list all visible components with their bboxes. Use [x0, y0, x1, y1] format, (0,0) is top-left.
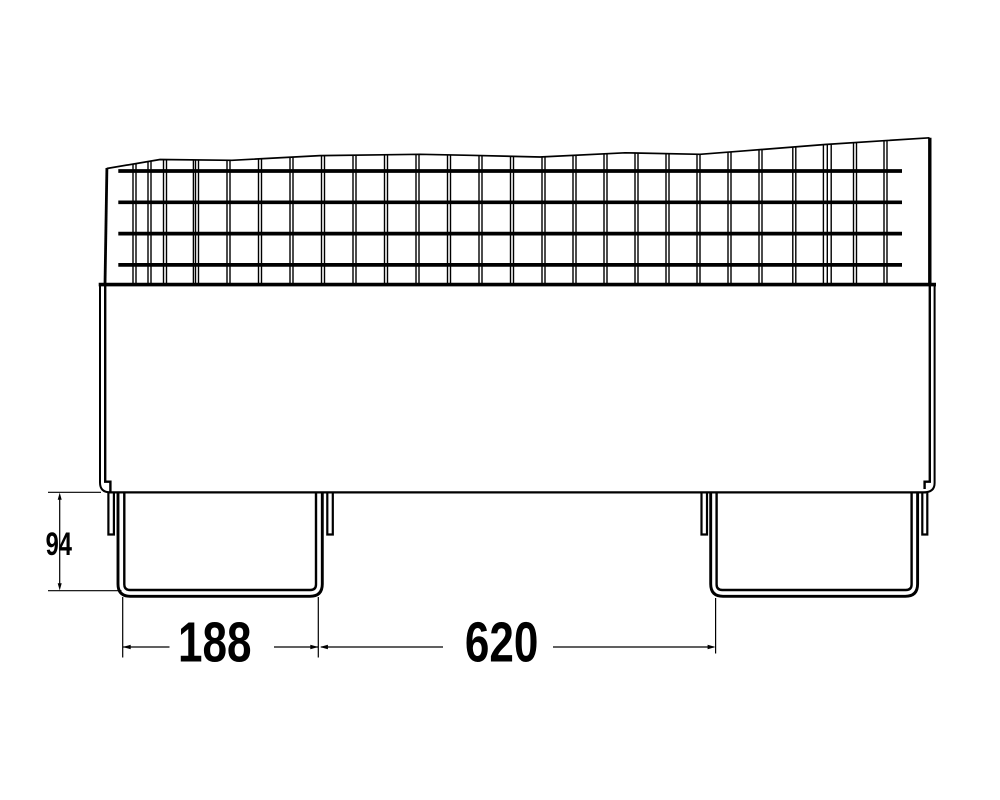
svg-text:620: 620	[465, 610, 539, 674]
svg-text:94: 94	[46, 526, 73, 563]
svg-text:188: 188	[178, 610, 252, 674]
